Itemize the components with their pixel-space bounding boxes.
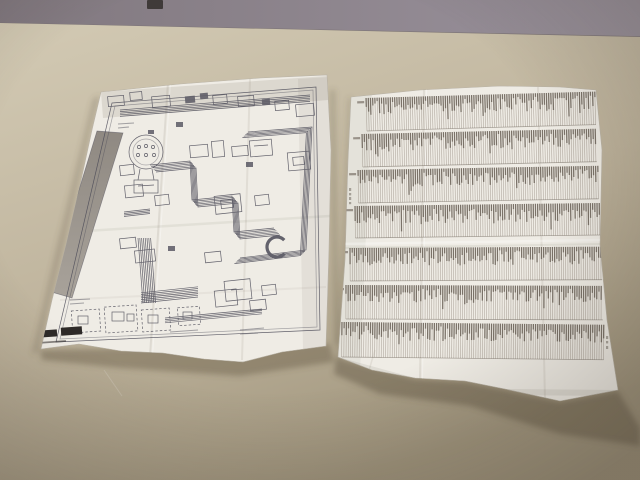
photo-scene <box>0 0 640 480</box>
vignette-overlay <box>0 0 640 480</box>
